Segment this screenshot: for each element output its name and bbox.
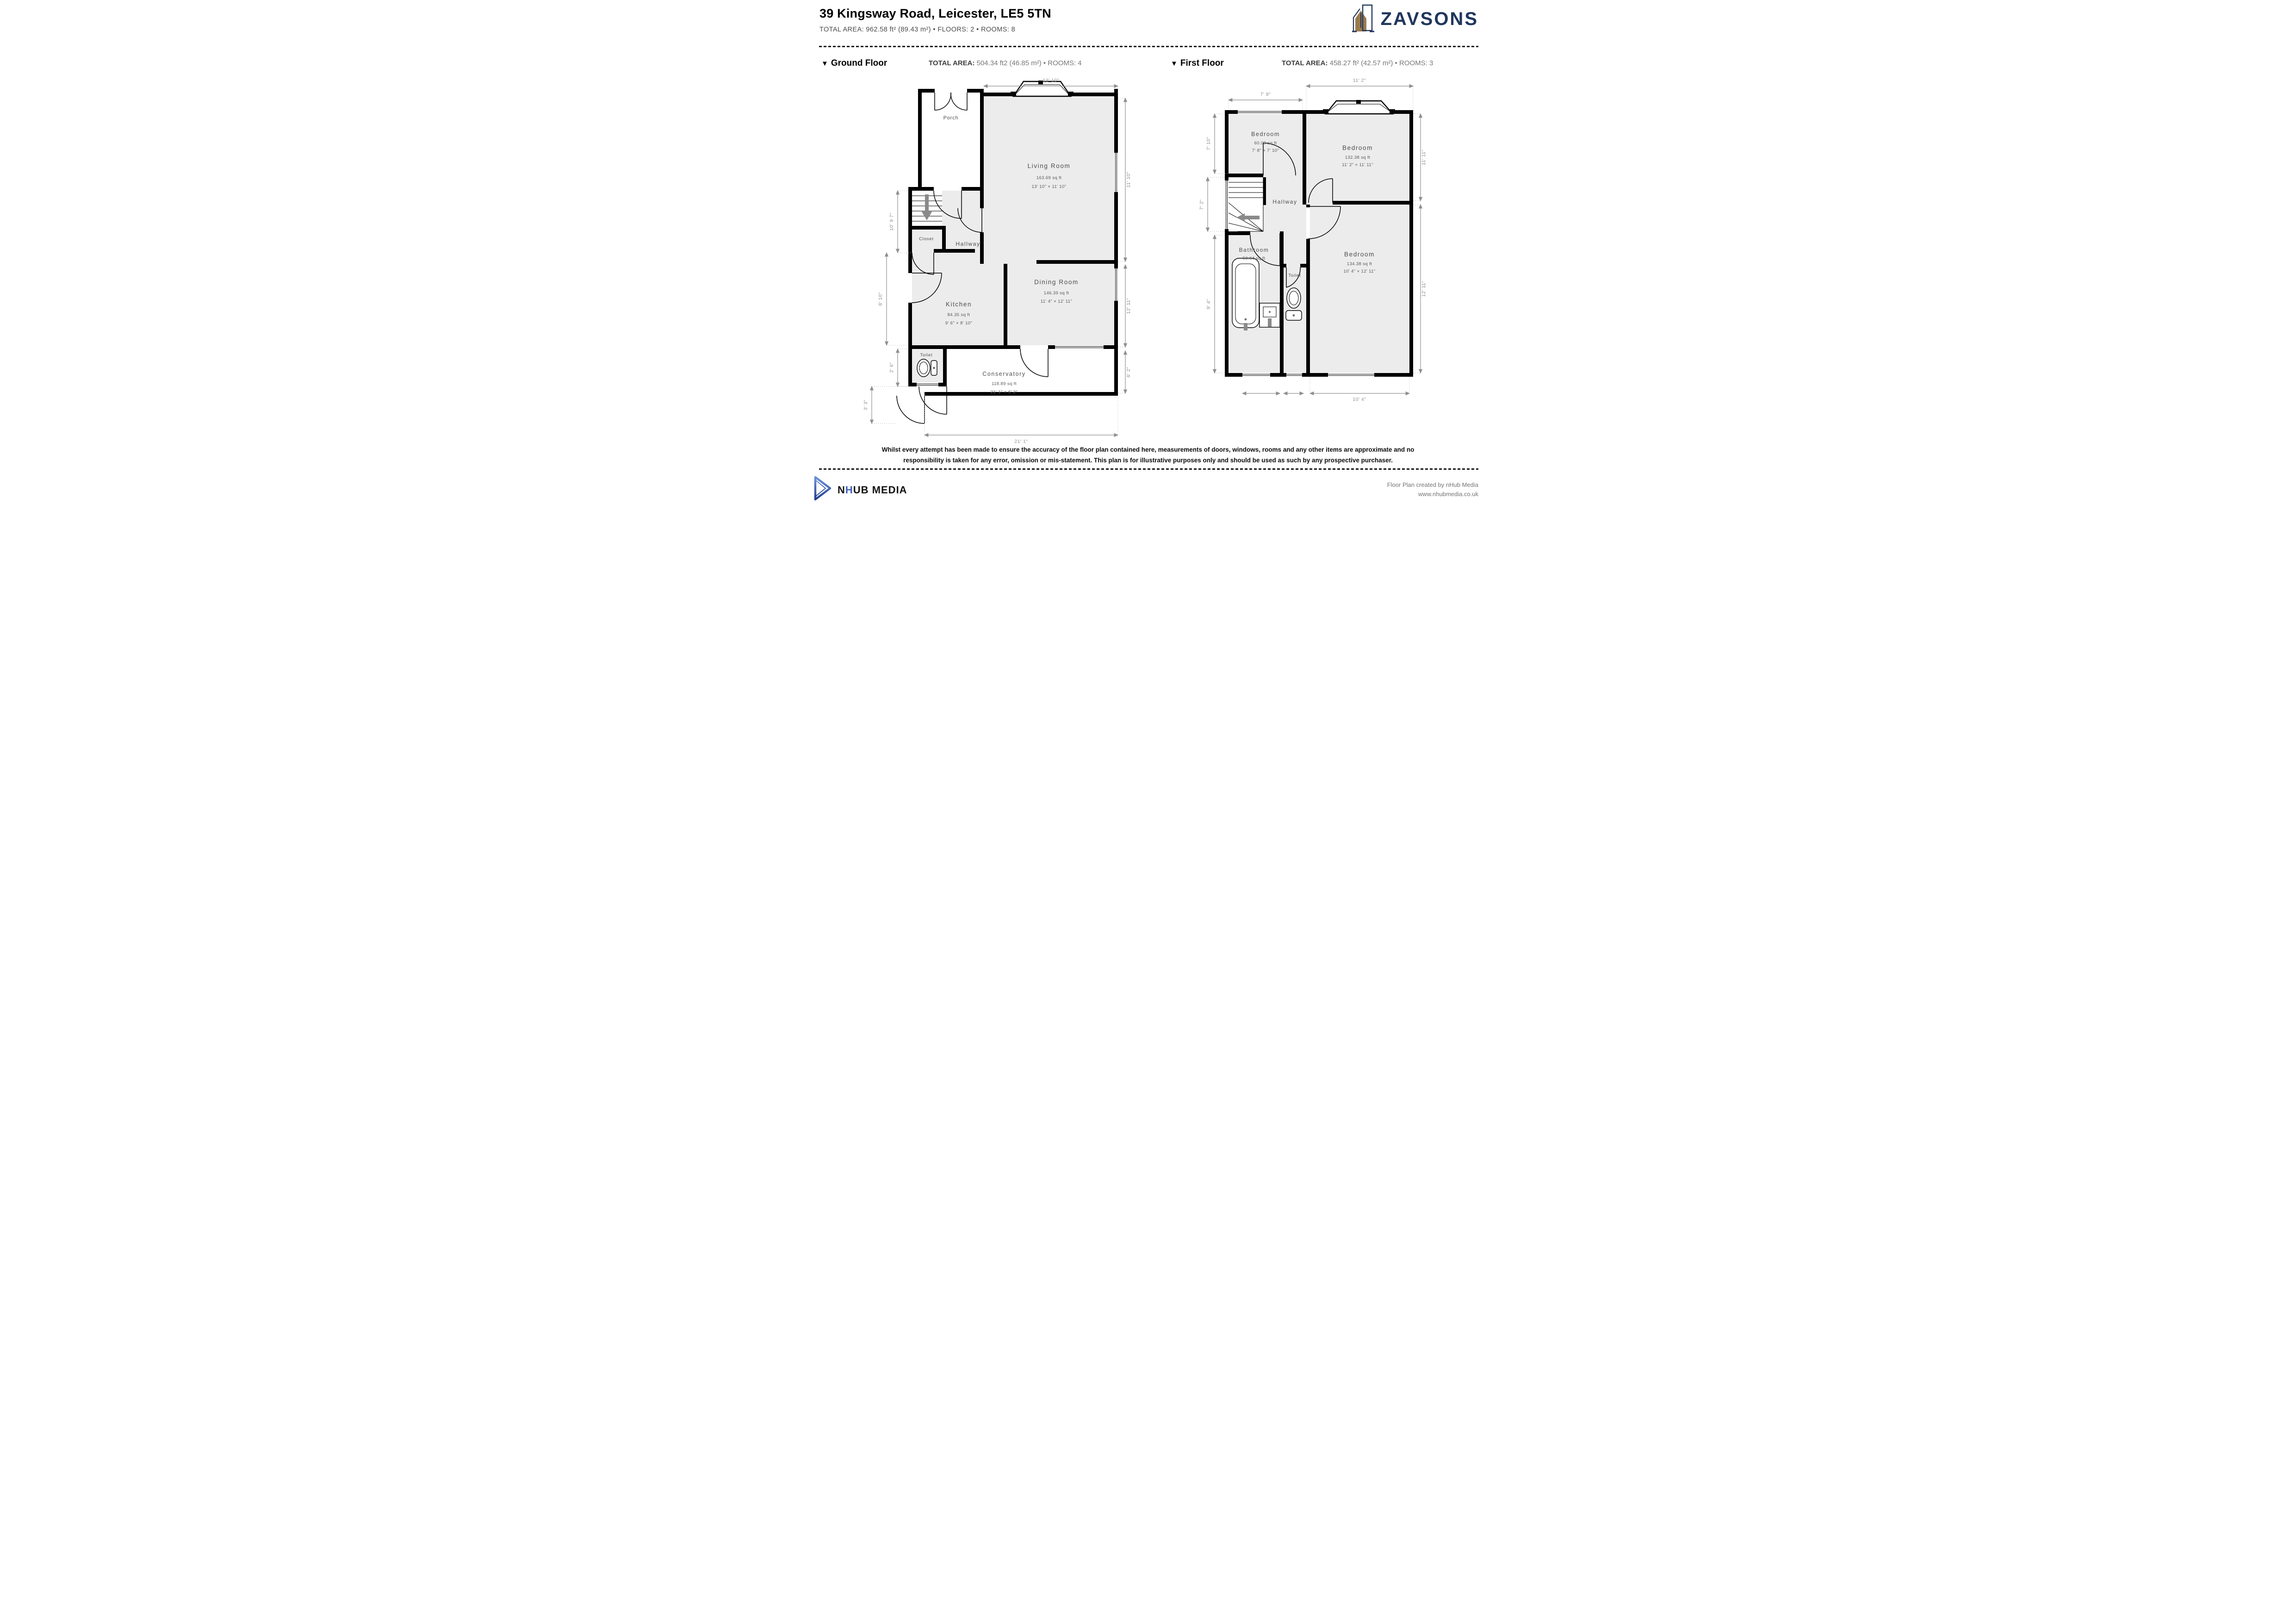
dim-gf-left-toilet: 2' 6"	[889, 362, 894, 373]
zavsons-logo: ZAVSONS	[1351, 4, 1478, 35]
ff-toilet-window	[1286, 373, 1302, 377]
disclaimer: Whilst every attempt has been made to en…	[824, 445, 1472, 466]
first-floor-total-area: TOTAL AREA: 458.27 ft² (42.57 m²) • ROOM…	[1282, 59, 1433, 67]
first-floor-heading: ▼First Floor	[1171, 58, 1224, 68]
footer-credits: Floor Plan created by nHub Media www.nhu…	[1387, 480, 1478, 499]
ff-sink-fixture	[1260, 303, 1280, 327]
nhub-media-logo: NHUB MEDIA	[813, 476, 907, 504]
room-area-kitchen: 84.35 sq ft	[948, 312, 970, 317]
dim-gf-right-living: 11' 10"	[1126, 172, 1131, 188]
nhub-word-media: MEDIA	[869, 484, 907, 496]
room-area-bedroom1: 60.09 sq ft	[1254, 141, 1277, 146]
room-area-bedroom3: 134.38 sq ft	[1347, 261, 1372, 267]
ground-floor-heading: ▼Ground Floor	[821, 58, 887, 68]
dim-ff-right-bottom: 12' 11"	[1421, 281, 1427, 297]
ff-bedroom3-window	[1328, 373, 1374, 377]
dim-gf-left-steps: 3' 3"	[863, 400, 869, 411]
room-label-toilet: Toilet	[920, 353, 933, 358]
dim-gf-right-dining: 12' 11"	[1126, 298, 1131, 314]
room-dims-kitchen: 9' 6" × 8' 10"	[945, 321, 973, 326]
dim-ff-bottom: 10' 4"	[1353, 397, 1366, 402]
disclaimer-line-2: responsibility is taken for any error, o…	[824, 455, 1472, 466]
dim-ff-left-stairs: 7' 2"	[1199, 199, 1204, 210]
room-label-living: Living Room	[1028, 162, 1071, 169]
room-label-ff-toilet: Toilet	[1289, 273, 1301, 278]
gf-dining-rear-window	[1055, 345, 1104, 349]
nhub-letter-h: H	[845, 484, 853, 496]
room-label-closet: Closet	[919, 236, 934, 242]
dim-gf-left-stairs: 10' 9 7"	[889, 213, 894, 231]
dim-ff-left-bathroom: 9' 4"	[1206, 299, 1211, 310]
room-area-bathroom: 50.64 sq ft	[1243, 256, 1266, 261]
footer-credit-line: Floor Plan created by nHub Media	[1387, 480, 1478, 490]
nhub-play-icon	[813, 476, 834, 504]
dim-gf-right-conservatory: 6' 2"	[1126, 367, 1131, 378]
nhub-wordmark: NHUB MEDIA	[838, 484, 907, 496]
zavsons-wordmark: ZAVSONS	[1381, 9, 1478, 30]
ff-bedroom1-window	[1238, 110, 1282, 114]
room-area-dining: 146.39 sq ft	[1044, 291, 1069, 296]
room-label-bedroom2: Bedroom	[1342, 144, 1373, 151]
dim-ff-left-bedroom: 7' 10"	[1206, 137, 1211, 150]
room-dims-bedroom2: 11' 2" × 11' 11"	[1342, 162, 1373, 168]
ground-floor-heading-label: Ground Floor	[831, 58, 887, 68]
top-divider	[819, 46, 1478, 47]
dim-ff-right-top: 11' 11"	[1421, 149, 1427, 165]
floor-plan-page: 39 Kingsway Road, Leicester, LE5 5TN TOT…	[787, 0, 1509, 511]
room-dims-bedroom1: 7' 8" × 7' 10"	[1252, 148, 1279, 153]
room-dims-dining: 11' 4" × 12' 11"	[1041, 299, 1072, 304]
gf-staircase	[912, 191, 942, 227]
gf-toilet-fixture	[917, 359, 937, 377]
gf-porch-double-door	[935, 93, 967, 110]
bottom-divider	[819, 468, 1478, 470]
ff-bathroom-window	[1242, 373, 1270, 377]
dim-gf-top: 13' 10"	[1043, 78, 1059, 83]
room-label-ff-hallway: Hallway	[1272, 199, 1297, 205]
room-label-dining: Dining Room	[1034, 279, 1079, 286]
gf-dining-side-window	[1114, 268, 1118, 301]
room-label-bedroom3: Bedroom	[1344, 251, 1375, 258]
first-floor-total-area-value: 458.27 ft² (42.57 m²) • ROOMS: 3	[1330, 59, 1433, 67]
ff-staircase	[1229, 177, 1263, 231]
room-label-bathroom: Bathroom	[1239, 247, 1269, 253]
ff-stairs-window	[1225, 180, 1229, 229]
room-label-bedroom1: Bedroom	[1251, 131, 1280, 137]
ground-floor-total-area: TOTAL AREA: 504.34 ft2 (46.85 m²) • ROOM…	[929, 59, 1082, 67]
room-area-living: 163.69 sq ft	[1036, 175, 1061, 180]
page-title: 39 Kingsway Road, Leicester, LE5 5TN	[819, 6, 1051, 21]
nhub-letters-ub: UB	[853, 484, 869, 496]
gf-living-window	[1114, 153, 1118, 192]
dim-gf-bottom: 21' 1"	[1014, 439, 1028, 444]
room-dims-living: 13' 10" × 11' 10"	[1032, 184, 1067, 189]
triangle-down-icon: ▼	[821, 60, 828, 68]
room-area-conservatory: 118.89 sq ft	[992, 381, 1017, 386]
room-label-porch: Porch	[943, 115, 959, 121]
room-area-bedroom2: 132.38 sq ft	[1345, 155, 1370, 160]
ff-bay-window	[1323, 100, 1395, 114]
zavsons-building-icon	[1351, 4, 1376, 35]
disclaimer-line-1: Whilst every attempt has been made to en…	[824, 445, 1472, 455]
room-label-kitchen: Kitchen	[946, 301, 972, 308]
room-label-conservatory: Conservatory	[982, 371, 1026, 377]
room-dims-bedroom3: 10' 4" × 12' 11"	[1343, 269, 1375, 274]
ff-bathtub-fixture	[1232, 258, 1259, 330]
room-label-hallway: Hallway	[956, 241, 980, 247]
ground-floor-plan: Porch Living Room 163.69 sq ft 13' 10" ×…	[851, 69, 1138, 458]
ground-floor-total-area-label: TOTAL AREA:	[929, 59, 974, 67]
footer-website: www.nhubmedia.co.uk	[1387, 490, 1478, 499]
ground-floor-total-area-value: 504.34 ft2 (46.85 m²) • ROOMS: 4	[977, 59, 1082, 67]
dim-gf-left-kitchen: 8' 10"	[878, 292, 883, 305]
dim-ff-top-right: 11' 2"	[1353, 78, 1366, 83]
nhub-letter-n: N	[838, 484, 845, 496]
dim-ff-top-left: 7' 8"	[1260, 92, 1271, 97]
triangle-down-icon: ▼	[1171, 60, 1178, 68]
page-subtitle: TOTAL AREA: 962.58 ft² (89.43 m²) • FLOO…	[819, 26, 1015, 33]
gf-bay-window	[1011, 81, 1074, 96]
ff-toilet-fixture	[1286, 288, 1302, 320]
gf-toilet-window	[917, 383, 938, 386]
first-floor-plan: Bedroom 60.09 sq ft 7' 8" × 7' 10" Bedro…	[1189, 69, 1476, 458]
room-dims-conservatory: 21' 1" × 6' 2"	[991, 390, 1018, 395]
first-floor-heading-label: First Floor	[1180, 58, 1224, 68]
first-floor-total-area-label: TOTAL AREA:	[1282, 59, 1328, 67]
